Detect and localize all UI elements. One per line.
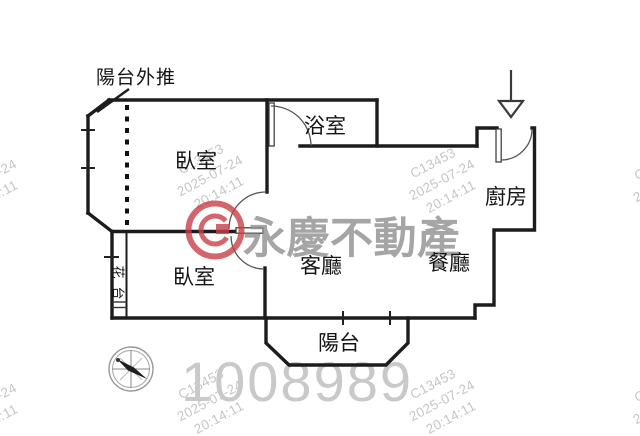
room-label-balcony: 陽台 xyxy=(318,327,360,357)
room-label-flower-stand-char-2: 台 xyxy=(110,286,129,299)
room-label-bathroom: 浴室 xyxy=(304,110,346,140)
annotation-balcony-pushout: 陽台外推 xyxy=(96,63,176,90)
compass-icon xyxy=(109,347,153,391)
room-label-kitchen: 廚房 xyxy=(485,181,527,211)
room-label-bedroom-upper: 臥室 xyxy=(175,145,217,175)
entrance-arrow-icon xyxy=(499,70,523,117)
room-label-flower-stand-char-1: 花 xyxy=(110,265,129,278)
room-label-living-room: 客廳 xyxy=(300,250,342,280)
door-leaves xyxy=(236,103,501,233)
floorplan-image: C13453 2025-07-24 20:14:11 C13453 2025-0… xyxy=(0,0,640,436)
room-label-dining-room: 餐廳 xyxy=(428,247,470,277)
room-label-bedroom-lower: 臥室 xyxy=(173,261,215,291)
flower-stand-dividers xyxy=(112,302,127,308)
